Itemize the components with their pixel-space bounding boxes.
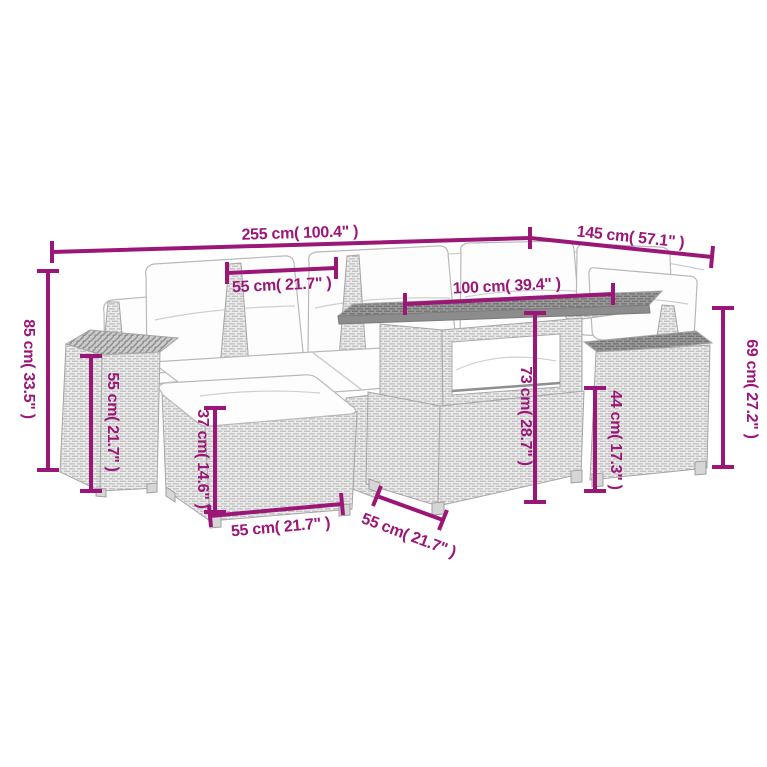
table-body-left [380,324,443,408]
product-dimension-image: 255 cm( 100.4" ) 145 cm( 57.1" ) 55 cm( … [0,0,767,767]
furniture-foot [432,502,444,515]
dimension-label-armrest-total-height: 69 cm( 27.2" ) [743,339,760,438]
dimension-label-seat-height: 44 cm( 17.3" ) [607,390,624,489]
right-armrest-box [584,331,712,487]
dimension-armrest-total-height: 69 cm( 27.2" ) [712,308,760,467]
dimension-diagram-canvas: 255 cm( 100.4" ) 145 cm( 57.1" ) 55 cm( … [0,0,767,767]
dimension-label-ottoman-height: 37 cm( 14.6" ) [194,409,211,508]
left-armrest-side [60,344,102,491]
table-base-right [438,391,584,506]
dimension-label-armrest-height: 55 cm( 21.7" ) [104,372,121,471]
furniture-foot [147,483,157,493]
furniture-foot [571,470,582,483]
dimension-label-ottoman-width: 55 cm( 21.7" ) [230,515,331,541]
dimension-overall-height: 85 cm( 33.5" ) [20,271,59,470]
furniture-foot [695,461,706,475]
dimension-label-overall-width: 255 cm( 100.4" ) [241,223,358,243]
dimension-label-overall-height: 85 cm( 33.5" ) [20,319,37,418]
dimension-label-table-height: 73 cm( 28.7" ) [517,366,534,465]
